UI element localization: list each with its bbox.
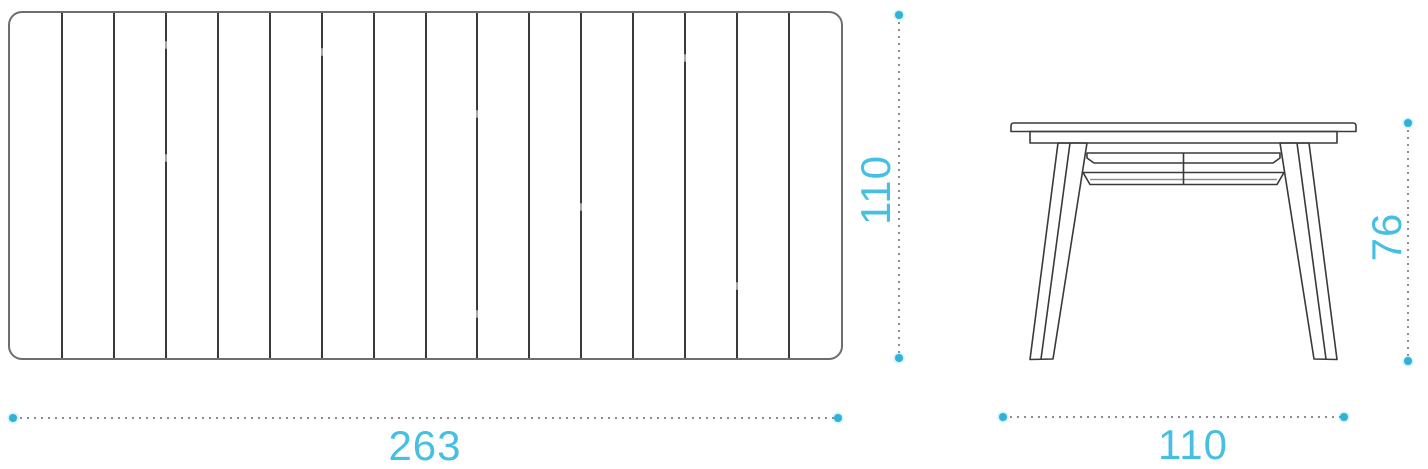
dimension-endpoint-dot bbox=[1404, 357, 1412, 365]
slat-joint-mark bbox=[321, 48, 323, 56]
slat-line bbox=[632, 13, 634, 358]
front-view-height-label: 76 bbox=[1365, 197, 1409, 277]
top-view-width-dimension-line bbox=[13, 417, 838, 419]
dimension-endpoint-dot bbox=[834, 414, 842, 422]
top-view-width-label: 263 bbox=[365, 424, 485, 468]
slat-joint-mark bbox=[736, 282, 738, 290]
left-leg-outline bbox=[1030, 143, 1087, 360]
dimension-drawing-canvas: 110 263 76 110 bbox=[0, 0, 1428, 469]
slat-line bbox=[528, 13, 530, 358]
front-view-width-dimension-line bbox=[1003, 416, 1344, 418]
slat-line bbox=[321, 13, 323, 358]
slat-joint-mark bbox=[165, 41, 167, 49]
slat-joint-mark bbox=[580, 203, 582, 211]
apron-outline bbox=[1030, 132, 1337, 144]
dimension-endpoint-dot bbox=[9, 414, 17, 422]
slat-joint-mark bbox=[165, 154, 167, 162]
slat-line bbox=[684, 13, 686, 358]
top-view-depth-label: 110 bbox=[854, 150, 898, 230]
slat-joint-mark bbox=[684, 54, 686, 62]
slat-line bbox=[788, 13, 790, 358]
slat-line bbox=[113, 13, 115, 358]
dimension-endpoint-dot bbox=[1404, 119, 1412, 127]
slat-line bbox=[736, 13, 738, 358]
slat-line bbox=[217, 13, 219, 358]
slat-lines bbox=[10, 13, 841, 358]
slat-line bbox=[425, 13, 427, 358]
slat-line bbox=[476, 13, 478, 358]
dimension-endpoint-dot bbox=[895, 11, 903, 19]
slat-line bbox=[61, 13, 63, 358]
table-front-view bbox=[990, 115, 1370, 365]
left-leg-edge-line bbox=[1041, 143, 1070, 359]
table-top-view-outline bbox=[8, 11, 843, 360]
slat-line bbox=[269, 13, 271, 358]
right-leg-outline bbox=[1280, 143, 1337, 360]
right-leg-edge-line bbox=[1297, 143, 1326, 359]
slat-line bbox=[580, 13, 582, 358]
front-view-width-label: 110 bbox=[1133, 423, 1253, 467]
dimension-endpoint-dot bbox=[895, 354, 903, 362]
dimension-endpoint-dot bbox=[999, 413, 1007, 421]
slat-line bbox=[373, 13, 375, 358]
slat-line bbox=[165, 13, 167, 358]
tabletop-outline bbox=[1011, 123, 1356, 132]
dimension-endpoint-dot bbox=[1340, 413, 1348, 421]
